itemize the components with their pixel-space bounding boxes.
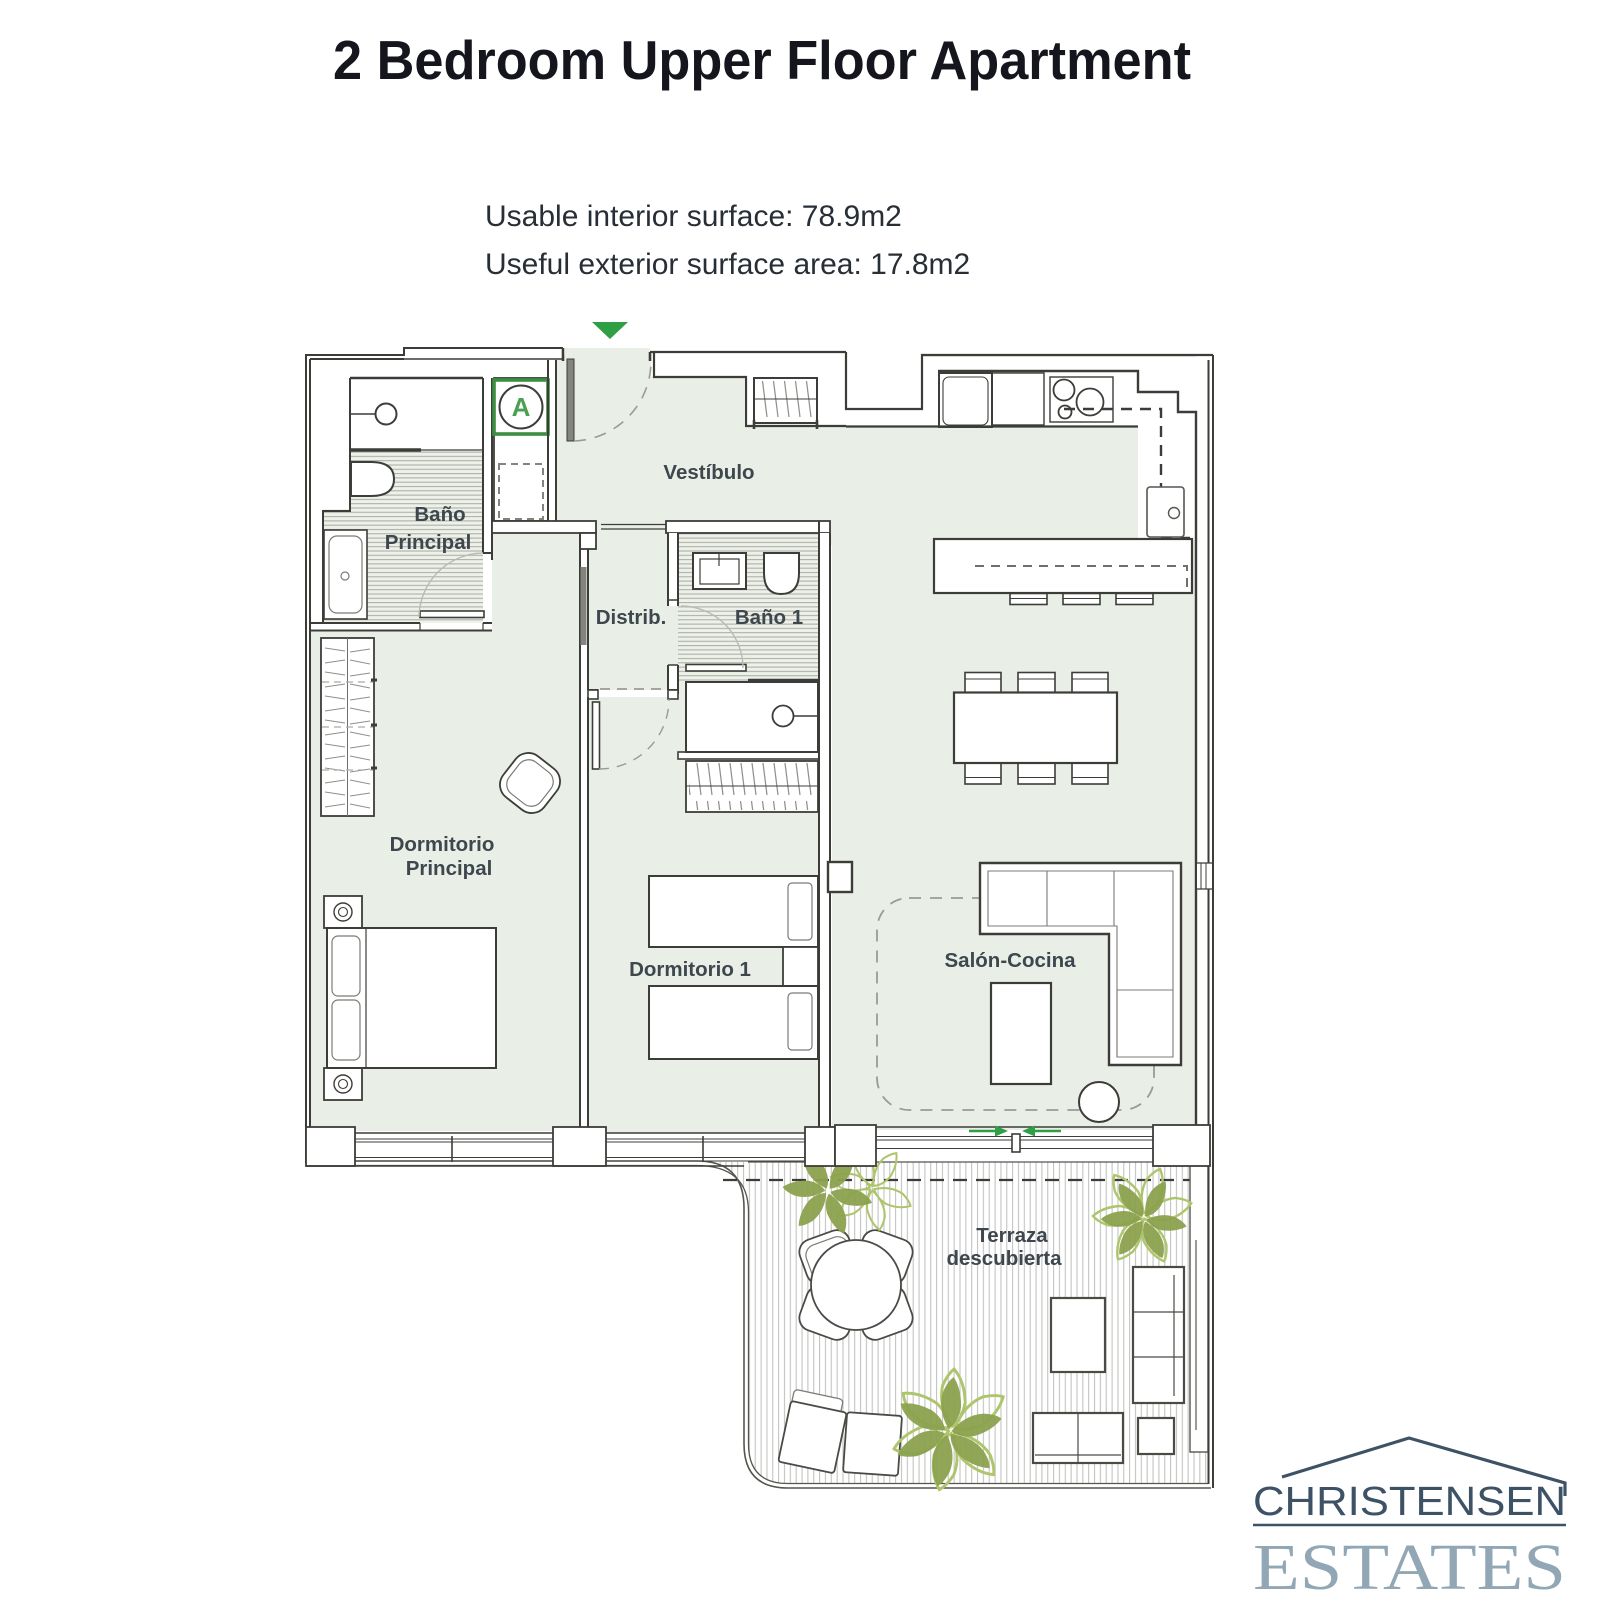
svg-text:Salón-Cocina: Salón-Cocina (945, 949, 1077, 972)
svg-text:Principal: Principal (385, 531, 472, 554)
svg-text:Usable interior surface: 78.9m: Usable interior surface: 78.9m2 (485, 200, 902, 233)
svg-text:Principal: Principal (406, 857, 493, 880)
svg-text:ESTATES: ESTATES (1253, 1531, 1566, 1600)
svg-text:2 Bedroom Upper Floor Apartmen: 2 Bedroom Upper Floor Apartment (333, 29, 1191, 91)
svg-text:Useful exterior surface area:: Useful exterior surface area: 17.8m2 (485, 248, 970, 281)
svg-text:Dormitorio 1: Dormitorio 1 (629, 958, 751, 981)
svg-text:CHRISTENSEN: CHRISTENSEN (1253, 1478, 1566, 1524)
svg-text:Baño 1: Baño 1 (735, 606, 803, 629)
svg-text:Baño: Baño (414, 503, 465, 526)
svg-text:Dormitorio: Dormitorio (390, 833, 495, 856)
svg-text:Vestíbulo: Vestíbulo (663, 461, 754, 484)
svg-text:Terraza: Terraza (976, 1224, 1048, 1247)
svg-text:A: A (512, 392, 531, 422)
svg-text:Distrib.: Distrib. (596, 606, 667, 629)
svg-text:descubierta: descubierta (946, 1247, 1062, 1270)
